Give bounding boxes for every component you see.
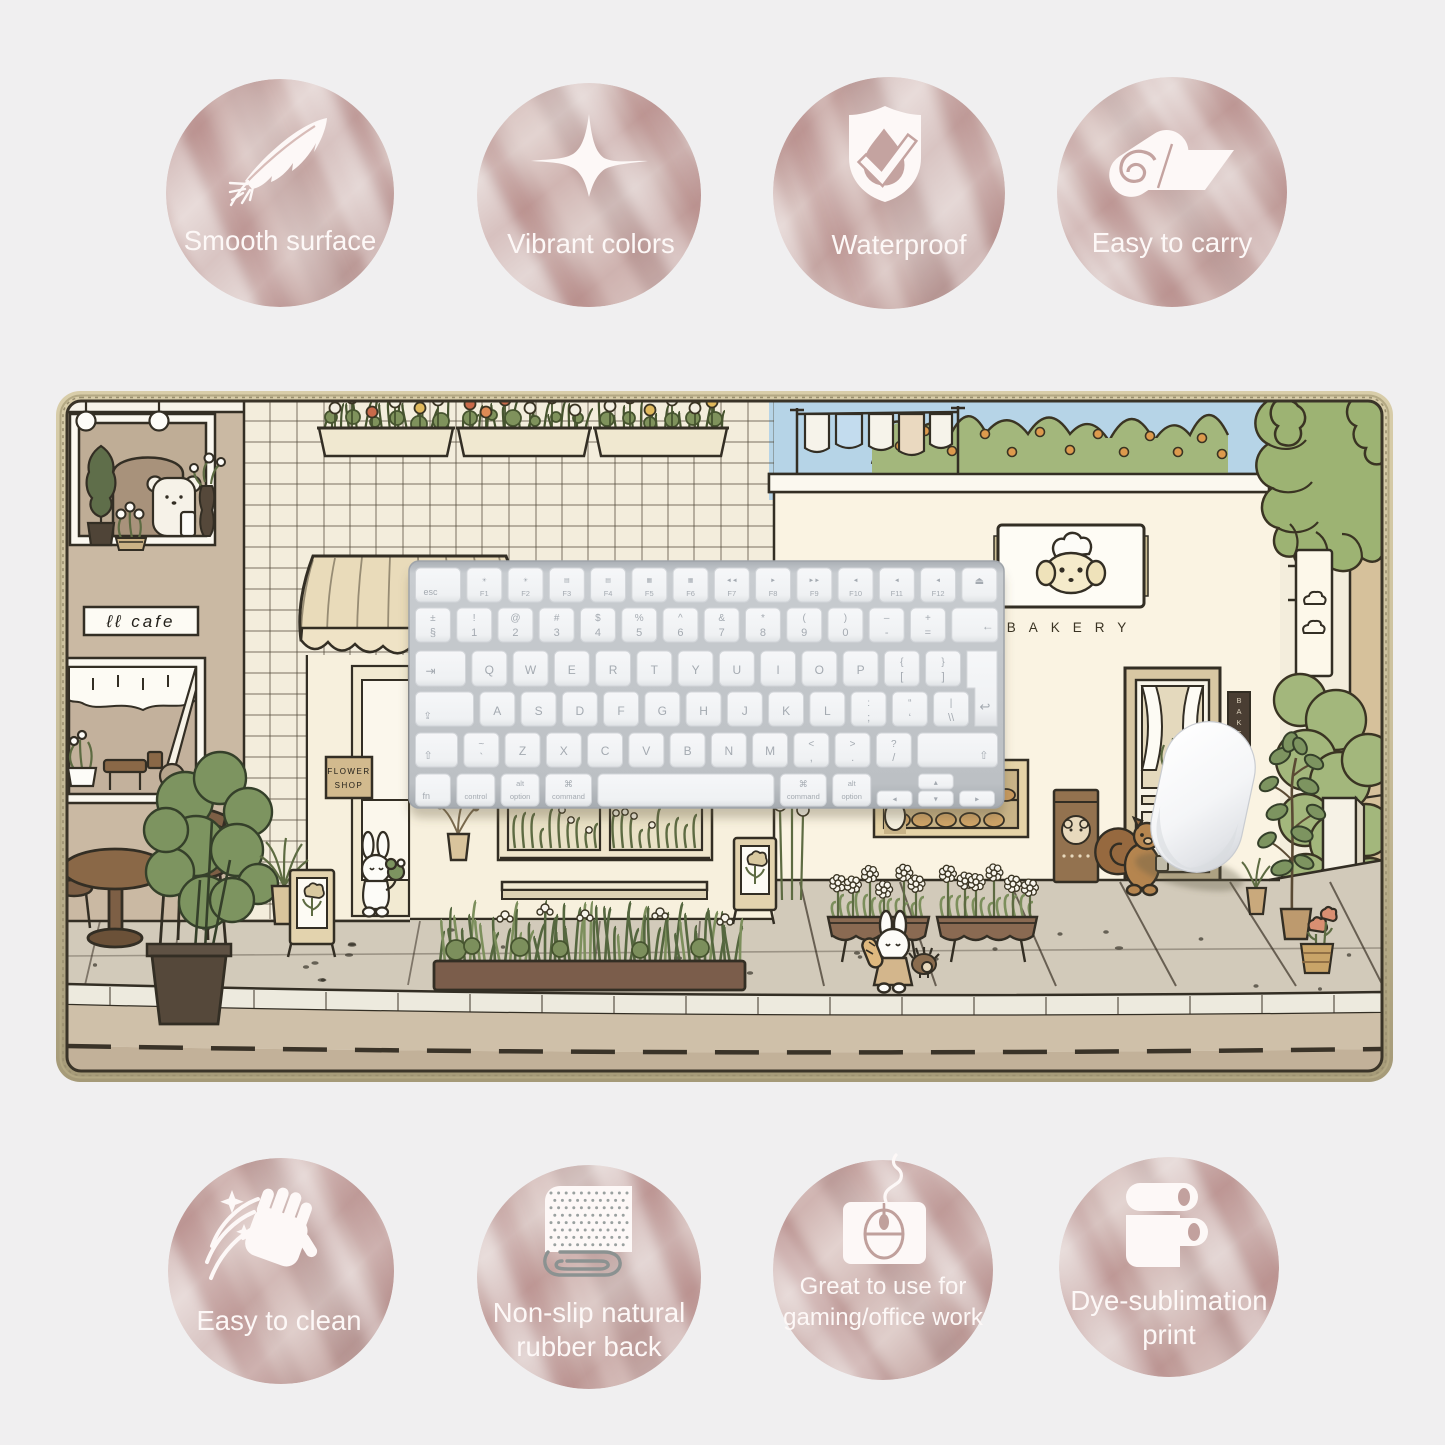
svg-text:option: option: [841, 792, 861, 801]
svg-text:option: option: [510, 792, 530, 801]
svg-text:V: V: [642, 744, 650, 758]
svg-text:<: <: [808, 739, 814, 750]
svg-text:@: @: [510, 613, 520, 624]
svg-text:FLOWER: FLOWER: [327, 767, 370, 776]
svg-text:X: X: [560, 744, 568, 758]
svg-text:-: -: [885, 627, 889, 639]
svg-text:|: |: [950, 698, 953, 709]
svg-text:?: ?: [891, 739, 897, 750]
svg-text:R: R: [609, 663, 618, 677]
svg-text:esc: esc: [424, 587, 439, 597]
svg-text:F8: F8: [769, 589, 778, 598]
svg-text:A: A: [1236, 707, 1241, 716]
svg-text:O: O: [815, 663, 824, 677]
svg-text:←: ←: [982, 619, 994, 633]
svg-text:F: F: [617, 704, 624, 718]
svg-text:Waterproof: Waterproof: [831, 229, 966, 260]
svg-text:H: H: [699, 704, 708, 718]
svg-text:◄: ◄: [894, 578, 900, 584]
svg-text:◂: ◂: [893, 795, 897, 804]
svg-text:I: I: [776, 663, 779, 677]
svg-text:SHOP: SHOP: [335, 781, 364, 790]
svg-text:⌘: ⌘: [564, 779, 573, 789]
svg-text:⇧: ⇧: [979, 750, 988, 762]
svg-text:F9: F9: [810, 589, 819, 598]
svg-text:Dye-sublimation: Dye-sublimation: [1070, 1285, 1267, 1316]
svg-text:◄: ◄: [853, 578, 859, 584]
svg-text:6: 6: [677, 627, 683, 639]
svg-text:§: §: [430, 627, 436, 639]
svg-text:5: 5: [636, 627, 642, 639]
svg-text:^: ^: [678, 613, 683, 624]
svg-text:☀: ☀: [523, 577, 528, 584]
svg-text:▤: ▤: [564, 578, 570, 584]
svg-text:%: %: [635, 613, 644, 624]
svg-text:0: 0: [842, 627, 848, 639]
svg-text:BAKERY: BAKERY: [1007, 620, 1140, 635]
svg-text:7: 7: [719, 627, 725, 639]
svg-text:L: L: [824, 704, 831, 718]
svg-text:1: 1: [471, 627, 477, 639]
svg-text:⇧: ⇧: [424, 750, 433, 762]
svg-text:*: *: [761, 613, 765, 624]
svg-text:▦: ▦: [646, 578, 652, 584]
svg-text:print: print: [1142, 1319, 1196, 1350]
svg-text:K: K: [1236, 718, 1241, 727]
svg-text:#: #: [554, 613, 560, 624]
svg-text::: :: [867, 698, 870, 709]
svg-text:4: 4: [595, 627, 601, 639]
svg-text:S: S: [535, 704, 543, 718]
svg-text:9: 9: [801, 627, 807, 639]
svg-text:“: “: [908, 698, 911, 709]
svg-text:Easy to clean: Easy to clean: [196, 1305, 361, 1336]
svg-text:►: ►: [770, 578, 776, 584]
svg-text:F2: F2: [521, 589, 530, 598]
svg-text:F4: F4: [604, 589, 613, 598]
svg-text:►►: ►►: [808, 578, 820, 584]
svg-text:T: T: [651, 663, 659, 677]
svg-text:F5: F5: [645, 589, 654, 598]
svg-text:Z: Z: [519, 744, 526, 758]
svg-text:◄: ◄: [935, 578, 941, 584]
svg-text:command: command: [787, 792, 820, 801]
svg-text:Great to use for: Great to use for: [800, 1273, 967, 1300]
svg-text:): ): [844, 613, 847, 624]
svg-text:`: `: [479, 752, 483, 764]
svg-text:8: 8: [760, 627, 766, 639]
svg-text:!: !: [473, 613, 476, 624]
svg-text:⇪: ⇪: [424, 711, 432, 722]
svg-text:;: ;: [867, 712, 870, 724]
svg-text:&: &: [718, 613, 725, 624]
svg-text:E: E: [568, 663, 576, 677]
svg-text:‘: ‘: [909, 712, 911, 724]
svg-text:⏏: ⏏: [975, 576, 984, 587]
svg-text:▴: ▴: [934, 778, 938, 787]
svg-text:Smooth surface: Smooth surface: [184, 225, 377, 256]
svg-text:>: >: [850, 739, 856, 750]
svg-text:U: U: [732, 663, 741, 677]
svg-text:A: A: [493, 704, 501, 718]
svg-text:K: K: [782, 704, 790, 718]
svg-text:N: N: [724, 744, 733, 758]
svg-text:control: control: [465, 792, 488, 801]
svg-text:Y: Y: [692, 663, 700, 677]
svg-text:alt: alt: [848, 779, 857, 788]
svg-text:▤: ▤: [605, 578, 611, 584]
svg-text:+: +: [925, 613, 931, 624]
svg-text:]: ]: [942, 671, 945, 683]
svg-text:▸: ▸: [975, 795, 979, 804]
svg-text:▾: ▾: [934, 795, 938, 804]
svg-text:~: ~: [478, 739, 484, 750]
svg-text:\\: \\: [948, 712, 955, 724]
svg-text:±: ±: [430, 613, 436, 624]
svg-text:M: M: [765, 744, 775, 758]
svg-text:F12: F12: [932, 589, 945, 598]
svg-text:◄◄: ◄◄: [726, 578, 738, 584]
svg-text:Vibrant colors: Vibrant colors: [507, 228, 675, 259]
svg-text:alt: alt: [516, 779, 525, 788]
svg-text:B: B: [684, 744, 692, 758]
svg-text:J: J: [742, 704, 748, 718]
svg-text:[: [: [900, 671, 903, 683]
svg-text:Non-slip natural: Non-slip natural: [493, 1297, 686, 1328]
svg-text:2: 2: [512, 627, 518, 639]
svg-text:☀: ☀: [482, 577, 487, 584]
svg-text:Easy to carry: Easy to carry: [1092, 227, 1253, 258]
svg-text:↩: ↩: [980, 699, 991, 714]
svg-text:–: –: [884, 613, 890, 624]
svg-text:=: =: [925, 627, 931, 639]
svg-text:Q: Q: [485, 663, 494, 677]
svg-text:3: 3: [554, 627, 560, 639]
svg-text:ℓℓ cafe: ℓℓ cafe: [106, 612, 176, 631]
svg-text:D: D: [575, 704, 584, 718]
svg-text:B: B: [1236, 696, 1241, 705]
svg-text:$: $: [595, 613, 601, 624]
svg-text:▦: ▦: [688, 578, 694, 584]
svg-text:⇥: ⇥: [426, 664, 436, 678]
svg-text:F10: F10: [849, 589, 862, 598]
svg-text:⌘: ⌘: [799, 779, 808, 789]
svg-text:F11: F11: [891, 589, 903, 598]
svg-text:W: W: [525, 663, 537, 677]
svg-text:gaming/office work: gaming/office work: [783, 1304, 984, 1331]
svg-text:command: command: [552, 792, 585, 801]
svg-text:G: G: [658, 704, 667, 718]
svg-text:F1: F1: [480, 589, 489, 598]
svg-text:,: ,: [810, 752, 813, 764]
svg-text:F6: F6: [686, 589, 695, 598]
svg-text:C: C: [601, 744, 610, 758]
svg-text:F7: F7: [727, 589, 736, 598]
svg-text:rubber back: rubber back: [516, 1331, 661, 1362]
svg-text:fn: fn: [423, 791, 431, 801]
svg-text:.: .: [851, 752, 854, 764]
svg-text:P: P: [857, 663, 865, 677]
svg-text:F3: F3: [562, 589, 571, 598]
